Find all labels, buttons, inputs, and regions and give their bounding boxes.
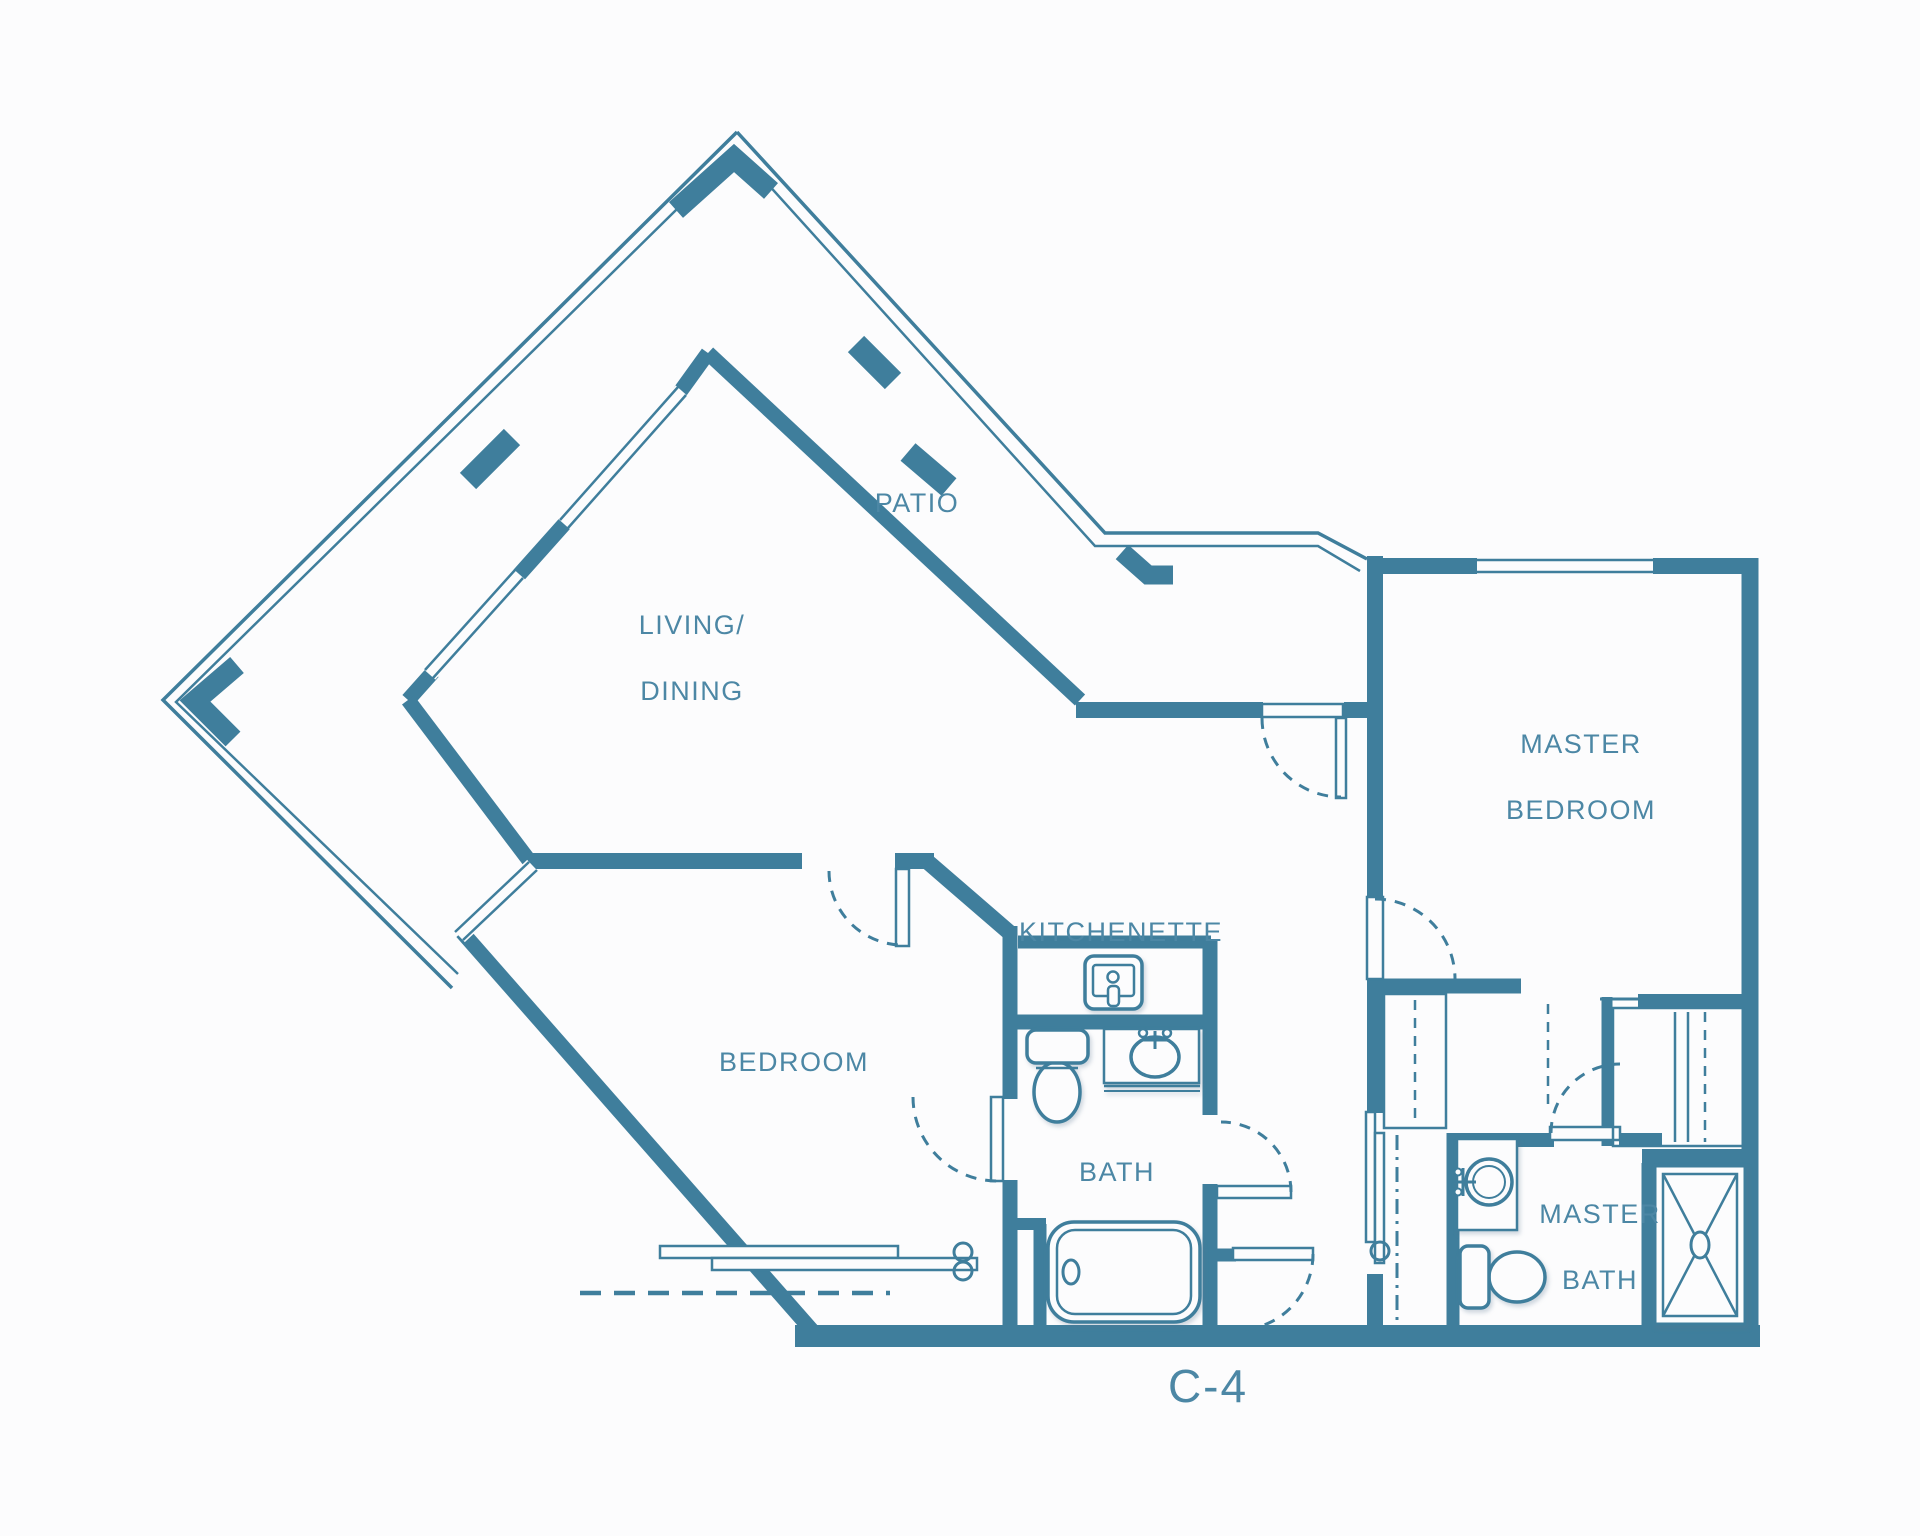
wall-living-northeast: [708, 353, 1080, 700]
toilet-bowl: [1034, 1062, 1080, 1122]
master-bedroom-door-swing-arc: [1375, 899, 1455, 979]
window-line: [560, 387, 678, 520]
bedroom-closet-door-panel: [712, 1258, 977, 1270]
wall-kitchen-step: [929, 863, 1010, 933]
tub-outer: [1048, 1222, 1200, 1322]
patio-edge-outer-right: [737, 132, 1367, 559]
patio-edge-inner-right: [737, 150, 1360, 571]
patio-column-left: [468, 437, 512, 481]
room-label-patio: PATIO: [857, 454, 960, 520]
corridor-sliding-panel: [1366, 1112, 1375, 1242]
patio-column-right-upper: [856, 344, 893, 381]
bedroom-door-swing-arc: [829, 871, 903, 945]
patio-edge-inner-left: [176, 150, 737, 974]
room-label-bath: BATH: [1061, 1123, 1155, 1189]
bedroom-bath-door-swing-arc: [913, 1097, 997, 1181]
room-label-text: BEDROOM: [1506, 795, 1656, 825]
bath-sink-icon: [1104, 1029, 1200, 1091]
faucet-handle: [1455, 1189, 1462, 1196]
shower-icon: [1655, 1166, 1745, 1324]
window-living-a: [429, 574, 519, 674]
wall-segment: [408, 672, 433, 700]
sink-faucet-handle: [1108, 986, 1119, 1006]
patio-corner-post-top: [676, 158, 771, 210]
faucet-handle: [1139, 1029, 1147, 1037]
patio-entry-post: [1122, 552, 1173, 575]
room-label-text: BATH: [1562, 1265, 1638, 1295]
window-living-b: [564, 391, 682, 524]
room-label-text: PATIO: [875, 488, 960, 518]
room-label-kitchenette: KITCHENETTE: [1001, 883, 1223, 949]
room-label-text: DINING: [640, 676, 744, 706]
room-label-master-bath: MASTER BATH: [1521, 1165, 1661, 1297]
master-bath-sink-icon: [1454, 1139, 1517, 1230]
window-line: [455, 862, 529, 932]
wall-bedroom-diagonal: [462, 932, 816, 1335]
entry-door-opening: [1262, 704, 1343, 717]
room-label-text: MASTER: [1520, 729, 1642, 759]
toilet-tank: [1460, 1246, 1489, 1308]
room-label-text: BATH: [1079, 1157, 1155, 1187]
entry-door-swing-arc: [1262, 718, 1341, 797]
kitchenette-sink-icon: [1085, 956, 1142, 1009]
master-bedroom-door-leaf: [1367, 897, 1383, 979]
bedroom-bath-door-leaf: [991, 1097, 1003, 1181]
bath-door-leaf: [1217, 1186, 1291, 1198]
window-line: [568, 395, 686, 528]
bathtub-icon: [1048, 1222, 1200, 1322]
window-bedroom: [459, 866, 533, 936]
wall-segment: [677, 353, 708, 396]
master-bath-door-leaf: [1550, 1127, 1620, 1140]
faucet-handle: [1163, 1029, 1171, 1037]
room-label-living-dining: LIVING/ DINING: [621, 576, 746, 708]
toilet-tank: [1027, 1030, 1088, 1063]
room-label-text: MASTER: [1539, 1199, 1661, 1229]
master-closet: [1613, 1008, 1743, 1146]
utility-door-swing-arc: [1237, 1254, 1313, 1330]
bath-door-swing-arc: [1221, 1122, 1291, 1192]
wall-living-southwest: [408, 700, 534, 867]
window-line: [425, 570, 515, 670]
room-label-text: KITCHENETTE: [1019, 917, 1223, 947]
room-label-bedroom: BEDROOM: [701, 1013, 869, 1079]
faucet-handle: [1455, 1169, 1462, 1176]
floor-plan-page: PATIO LIVING/ DINING MASTER BEDROOM BEDR…: [0, 0, 1920, 1536]
bedroom-closet-door-panel: [660, 1246, 898, 1258]
room-label-master-bedroom: MASTER BEDROOM: [1488, 695, 1656, 827]
room-label-text: LIVING/: [639, 610, 746, 640]
shower-drain: [1691, 1232, 1709, 1258]
bedroom-door-leaf: [896, 869, 909, 946]
wall-segment: [517, 521, 567, 577]
entry-door-leaf: [1336, 718, 1346, 798]
bath-toilet-icon: [1027, 1030, 1088, 1122]
utility-door-leaf: [1233, 1248, 1313, 1260]
window-line: [433, 578, 523, 678]
plan-code-label: C-4: [1168, 1359, 1248, 1413]
window-line: [463, 870, 537, 940]
plan-code-text: C-4: [1168, 1360, 1248, 1412]
room-label-text: BEDROOM: [719, 1047, 869, 1077]
